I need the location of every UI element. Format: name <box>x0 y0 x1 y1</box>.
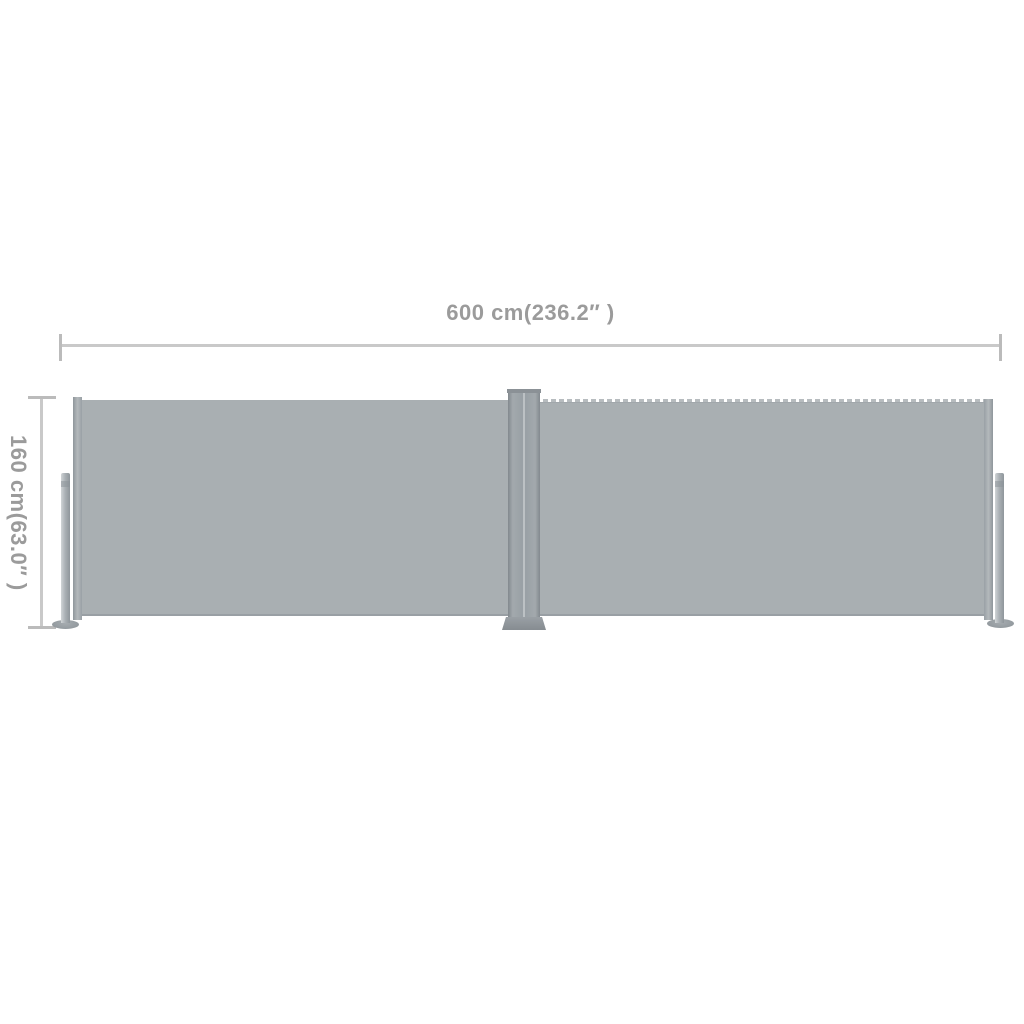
left-support-pole <box>61 473 70 623</box>
awning-product <box>0 0 1024 1024</box>
product-dimension-image: 600 cm(236.2″ ) 160 cm(63.0″ ) <box>0 0 1024 1024</box>
right-fabric-panel <box>540 402 985 616</box>
center-cassette-cap <box>507 389 541 393</box>
left-fabric-panel <box>82 400 510 616</box>
center-cassette-post <box>508 391 540 620</box>
left-pole-clamp <box>61 481 70 487</box>
right-edge-profile <box>984 399 993 620</box>
center-cassette-base <box>502 617 546 630</box>
right-pole-clamp <box>995 481 1004 487</box>
right-support-pole <box>995 473 1004 623</box>
left-edge-profile <box>73 397 82 620</box>
